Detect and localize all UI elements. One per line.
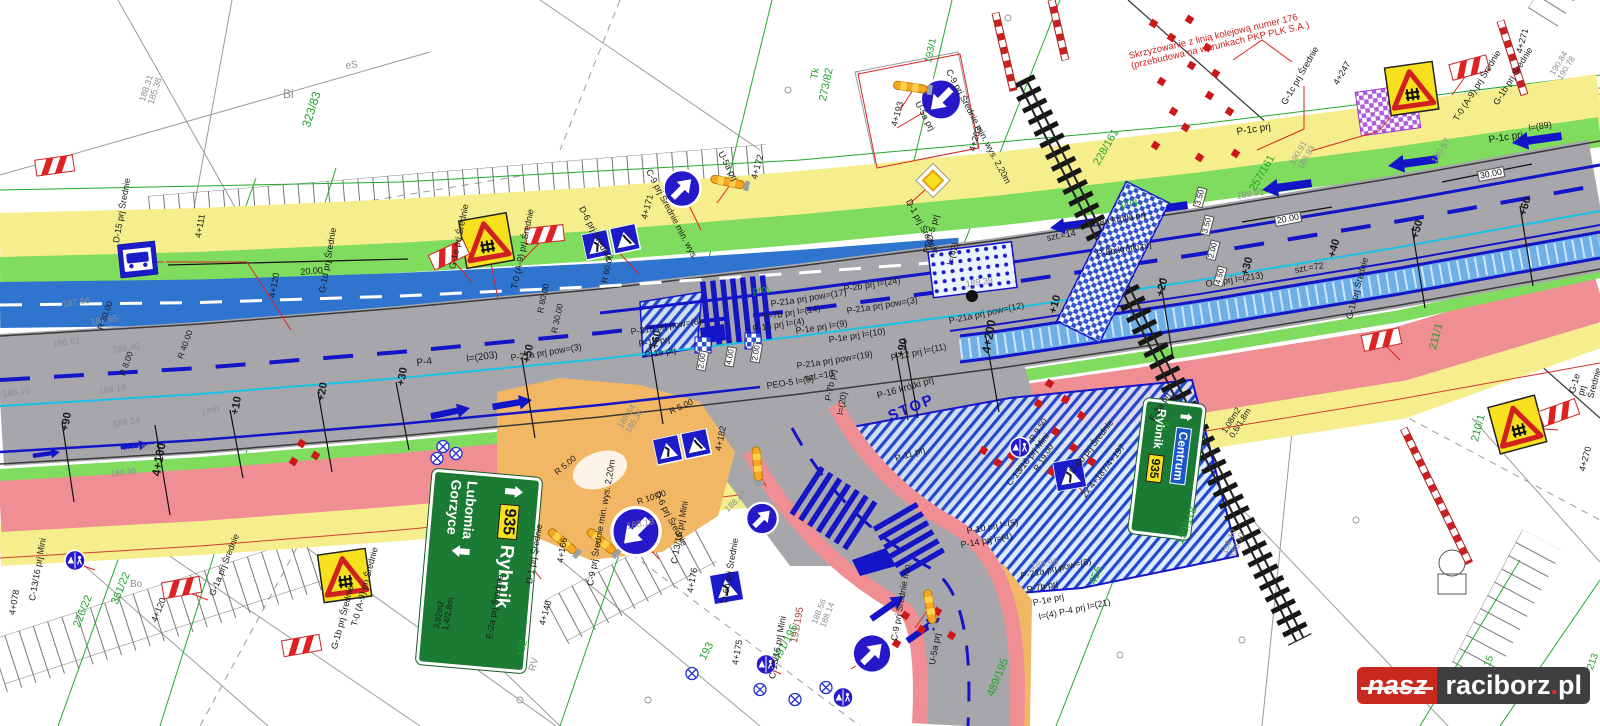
sign-c13-16-ped-bike-icon — [755, 654, 777, 681]
sign-c9-keep-right-icon — [851, 633, 893, 680]
sign-a9-railway-crossing-icon — [1381, 58, 1443, 124]
centrum-chip: Centrum — [1169, 427, 1192, 486]
watermark-naszraciborz: nasz raciborz.pl — [1357, 667, 1590, 704]
sign-d15-bus-stop-icon — [117, 241, 159, 284]
survey-point-icon — [753, 683, 767, 702]
sign-c13-16-ped-bike-icon — [64, 550, 86, 577]
down-arrow-icon — [445, 543, 471, 559]
sign-c13-16-ped-bike-icon — [832, 687, 854, 714]
destination-rybnik: Rybnik — [490, 544, 517, 609]
destination-rybnik-small: Rybnik — [1150, 408, 1169, 449]
sign-d6b-crossing-icon — [1052, 457, 1088, 497]
bollard-u5a-icon — [744, 445, 767, 488]
direction-sign-rybnik-lubomia: 935 Rybnik Lubomia Gorzyce — [416, 469, 543, 674]
sign-c13-16-ped-bike-icon — [1009, 437, 1031, 464]
plan-basemap — [0, 0, 1600, 726]
route-shield-935: 935 — [497, 504, 520, 540]
construction-plan-canvas: 935 Rybnik Lubomia Gorzyce Centrum Rybni… — [0, 0, 1600, 726]
sign-c9-keep-right-icon — [745, 502, 779, 541]
sign-d6b-crossing-icon — [709, 570, 745, 610]
direction-row-rybnik: 935 Rybnik — [484, 483, 524, 663]
direction-row-lubomia: Lubomia Gorzyce — [433, 479, 479, 659]
survey-point-icon — [430, 452, 444, 471]
up-arrow-icon — [498, 483, 524, 499]
survey-point-icon — [788, 693, 802, 712]
survey-point-icon — [685, 667, 699, 686]
marker-g1-crossing-post-icon — [524, 223, 566, 250]
up-arrow-icon — [1176, 411, 1194, 423]
watermark-nasz: nasz — [1357, 667, 1437, 704]
route-shield-935-small: 935 — [1145, 454, 1164, 484]
survey-point-icon — [819, 681, 833, 700]
sign-c9-keep-right-icon — [662, 169, 702, 214]
sign-d1-priority-road-icon — [912, 160, 954, 207]
sign-a9-railway-crossing-icon — [314, 545, 376, 611]
survey-point-icon — [449, 447, 463, 466]
watermark-raciborz-pl: raciborz.pl — [1437, 667, 1590, 704]
